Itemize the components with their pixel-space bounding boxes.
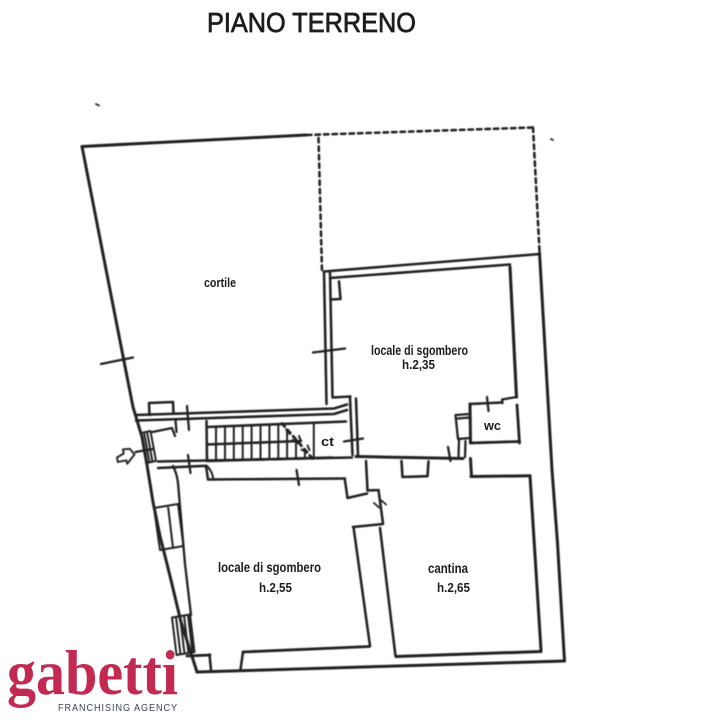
svg-text:cantina: cantina — [428, 561, 468, 576]
svg-text:wc: wc — [483, 419, 501, 433]
svg-text:ct: ct — [321, 435, 335, 449]
svg-text:PIANO TERRENO: PIANO TERRENO — [207, 7, 416, 38]
svg-text:gabetti: gabetti — [7, 638, 178, 708]
svg-text:locale di sgombero: locale di sgombero — [371, 343, 468, 358]
svg-text:h.2,65: h.2,65 — [437, 581, 470, 595]
svg-text:locale di sgombero: locale di sgombero — [218, 560, 321, 575]
svg-text:h.2,55: h.2,55 — [259, 581, 292, 595]
svg-text:cortile: cortile — [204, 276, 236, 290]
svg-text:FRANCHISING AGENCY: FRANCHISING AGENCY — [58, 703, 178, 714]
svg-text:h.2,35: h.2,35 — [402, 358, 435, 372]
